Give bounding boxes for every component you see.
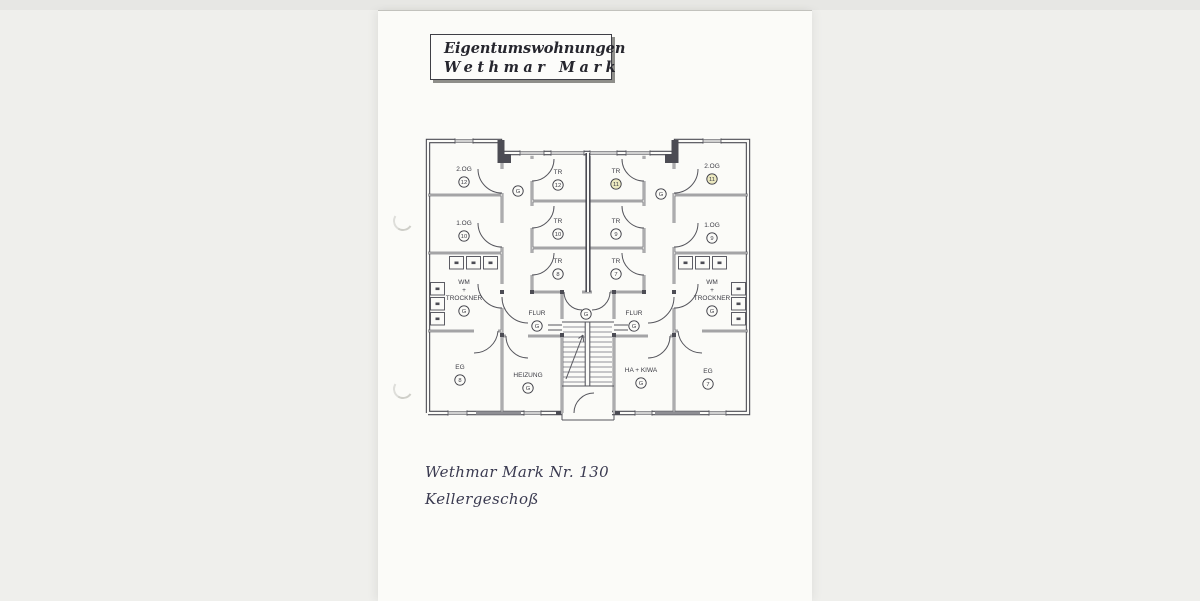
svg-text:G: G <box>526 386 531 392</box>
svg-text:+: + <box>462 287 466 294</box>
svg-text:9: 9 <box>710 236 713 242</box>
room-label-eg-7: EG7 <box>703 368 713 389</box>
svg-text:HEIZUNG: HEIZUNG <box>513 372 542 379</box>
punch-hole-bottom <box>391 377 415 401</box>
room-label-flur-left: FLURG <box>529 310 546 331</box>
scanned-sheet-background: { "document": { "header": { "line1": "Ei… <box>0 0 1200 600</box>
svg-text:10: 10 <box>555 232 561 238</box>
svg-text:FLUR: FLUR <box>529 310 546 317</box>
svg-text:G: G <box>516 189 521 195</box>
svg-text:G: G <box>710 309 715 315</box>
scanner-bed-strip <box>0 0 1200 10</box>
scanned-page: Eigentumswohnungen Wethmar Mark <box>378 10 812 601</box>
room-label-tr-8: TR8 <box>553 258 563 279</box>
room-label-wm-trockner-left: WM+TROCKNERG <box>446 279 483 316</box>
room-label-eg-8: EG8 <box>455 364 465 385</box>
svg-text:1.OG: 1.OG <box>704 222 720 229</box>
svg-text:9: 9 <box>614 232 617 238</box>
svg-text:G: G <box>639 381 644 387</box>
room-label-tr-12: TR12 <box>553 169 563 190</box>
svg-text:G: G <box>535 324 540 330</box>
title-box: Eigentumswohnungen Wethmar Mark <box>430 34 612 80</box>
svg-text:1.OG: 1.OG <box>456 220 472 227</box>
svg-text:G: G <box>462 309 467 315</box>
room-label-stair-hall-g: G <box>581 309 591 319</box>
svg-text:12: 12 <box>461 180 467 186</box>
svg-text:EG: EG <box>703 368 712 375</box>
svg-text:7: 7 <box>614 272 617 278</box>
room-label-1og-9: 1.OG9 <box>704 222 720 243</box>
room-label-tr-9: TR9 <box>611 218 621 239</box>
svg-text:+: + <box>710 287 714 294</box>
svg-text:11: 11 <box>709 177 715 183</box>
room-label-corridor-g-left: G <box>513 186 523 196</box>
room-label-tr-7: TR7 <box>611 258 621 279</box>
room-label-wm-trockner-right: WM+TROCKNERG <box>694 279 731 316</box>
svg-text:10: 10 <box>461 234 467 240</box>
room-label-2og-11: 2.OG11 <box>704 163 720 184</box>
svg-text:7: 7 <box>706 382 709 388</box>
room-label-flur-right: FLURG <box>626 310 643 331</box>
room-label-heizung: HEIZUNGG <box>513 372 542 393</box>
svg-text:TROCKNER: TROCKNER <box>446 295 483 302</box>
footer-project-line: Wethmar Mark Nr. 130 <box>425 463 609 481</box>
svg-text:TR: TR <box>554 169 563 176</box>
svg-text:G: G <box>659 192 664 198</box>
svg-text:G: G <box>632 324 637 330</box>
room-label-2og-12: 2.OG12 <box>456 166 472 187</box>
light-well-bands <box>476 411 700 414</box>
svg-text:TR: TR <box>612 258 621 265</box>
svg-text:TROCKNER: TROCKNER <box>694 295 731 302</box>
svg-text:WM: WM <box>458 279 470 286</box>
floor-plan: 2.OG12TR12TR112.OG11GG1.OG10TR10TR91.OG9… <box>423 138 753 425</box>
room-label-ha-kiwa: HA + KIWAG <box>625 367 658 388</box>
svg-text:TR: TR <box>554 258 563 265</box>
svg-text:TR: TR <box>612 218 621 225</box>
svg-text:WM: WM <box>706 279 718 286</box>
floor-plan-svg: 2.OG12TR12TR112.OG11GG1.OG10TR10TR91.OG9… <box>423 138 753 425</box>
svg-text:8: 8 <box>556 272 559 278</box>
staircase <box>548 322 628 386</box>
title-line-2: Wethmar Mark <box>444 58 611 77</box>
room-label-1og-10: 1.OG10 <box>456 220 472 241</box>
svg-text:HA + KIWA: HA + KIWA <box>625 367 658 374</box>
svg-text:TR: TR <box>554 218 563 225</box>
svg-text:11: 11 <box>613 182 619 188</box>
room-label-tr-11: TR11 <box>611 168 621 189</box>
room-label-corridor-g-right: G <box>656 189 666 199</box>
svg-text:2.OG: 2.OG <box>704 163 720 170</box>
footer-floor-line: Kellergeschoß <box>425 490 539 508</box>
title-line-1: Eigentumswohnungen <box>444 39 611 58</box>
room-label-tr-10: TR10 <box>553 218 563 239</box>
svg-text:2.OG: 2.OG <box>456 166 472 173</box>
svg-text:8: 8 <box>458 378 461 384</box>
entrance-porch <box>562 413 614 420</box>
svg-text:G: G <box>584 312 589 318</box>
svg-text:TR: TR <box>612 168 621 175</box>
svg-text:FLUR: FLUR <box>626 310 643 317</box>
svg-text:EG: EG <box>455 364 464 371</box>
svg-text:12: 12 <box>555 183 561 189</box>
punch-hole-top <box>391 209 415 233</box>
